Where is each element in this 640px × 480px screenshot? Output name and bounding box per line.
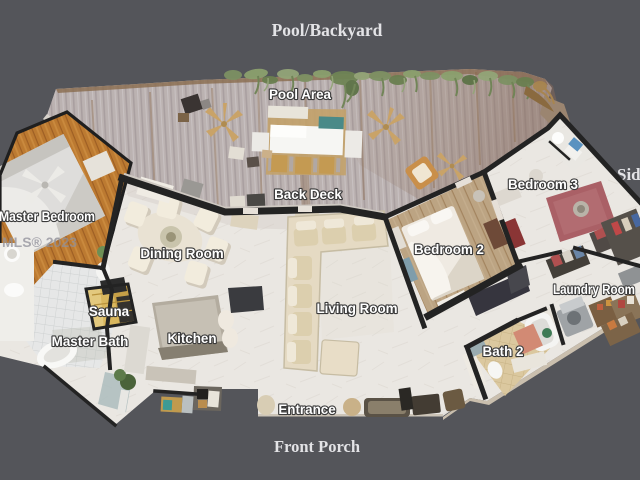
svg-text:Dining Room: Dining Room xyxy=(140,246,223,261)
svg-text:Bedroom 3: Bedroom 3 xyxy=(508,177,578,192)
svg-text:MLS® 2023: MLS® 2023 xyxy=(2,234,77,250)
svg-text:Kitchen: Kitchen xyxy=(167,331,216,346)
svg-text:Master Bedroom: Master Bedroom xyxy=(0,209,95,224)
svg-text:Bedroom 2: Bedroom 2 xyxy=(414,242,484,257)
svg-text:Living Room: Living Room xyxy=(316,301,397,316)
svg-text:Entrance: Entrance xyxy=(278,402,335,417)
svg-text:Laundry Room: Laundry Room xyxy=(553,282,635,297)
svg-text:Master Bath: Master Bath xyxy=(52,334,129,349)
svg-text:Sauna: Sauna xyxy=(89,304,130,319)
svg-text:Pool Area: Pool Area xyxy=(269,87,332,102)
svg-text:Back Deck: Back Deck xyxy=(274,187,342,202)
svg-text:Bath 2: Bath 2 xyxy=(483,344,524,359)
svg-text:Pool/Backyard: Pool/Backyard xyxy=(272,20,383,40)
svg-text:Front Porch: Front Porch xyxy=(274,437,360,456)
